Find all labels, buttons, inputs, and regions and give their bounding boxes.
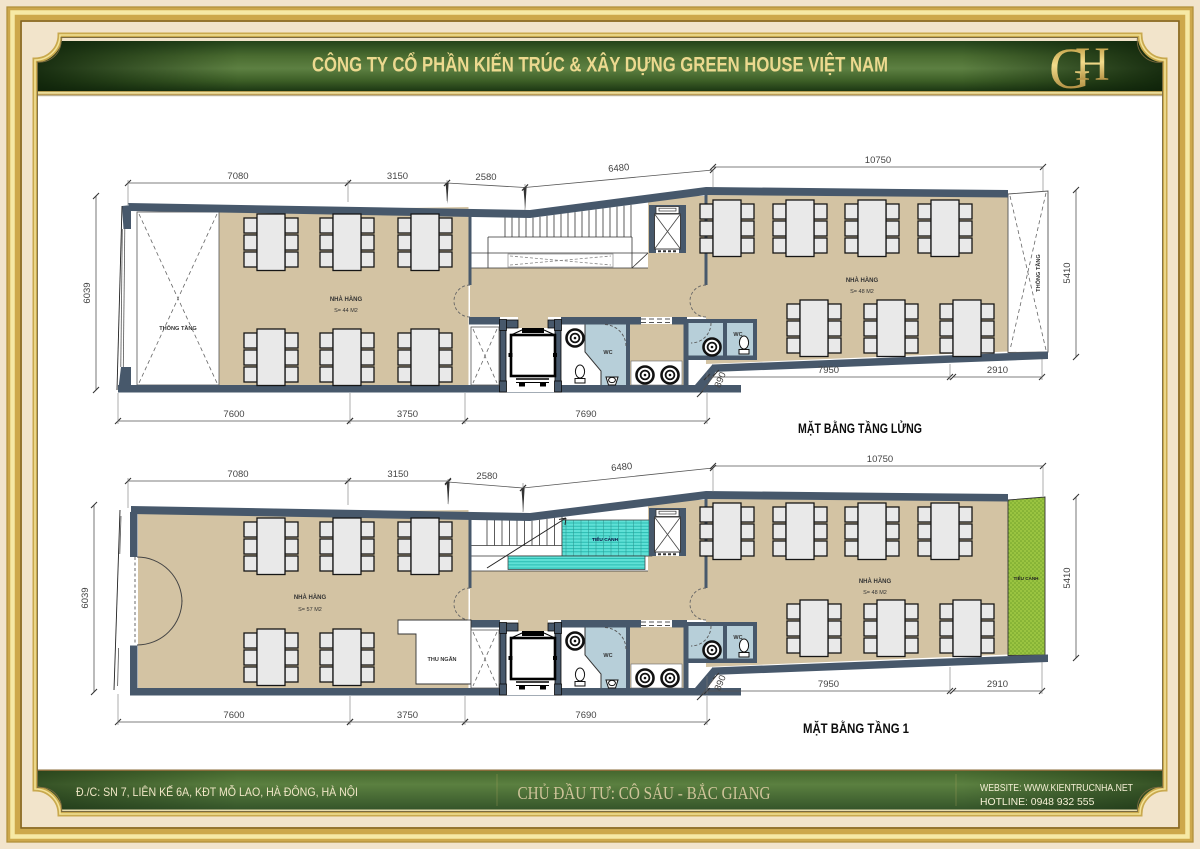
- svg-text:S= 44 M2: S= 44 M2: [334, 308, 358, 314]
- svg-text:3150: 3150: [387, 469, 408, 480]
- svg-text:NHÀ HÀNG: NHÀ HÀNG: [859, 578, 892, 585]
- svg-text:CHỦ ĐẦU TƯ: CÔ SÁU - BẮC GIANG: CHỦ ĐẦU TƯ: CÔ SÁU - BẮC GIANG: [518, 782, 771, 803]
- svg-text:6039: 6039: [80, 587, 91, 608]
- svg-text:2580: 2580: [475, 172, 496, 183]
- svg-text:H: H: [1075, 38, 1110, 91]
- svg-text:NHÀ HÀNG: NHÀ HÀNG: [294, 594, 327, 601]
- svg-text:7690: 7690: [575, 409, 596, 420]
- svg-text:7080: 7080: [227, 469, 248, 480]
- svg-text:MẶT BẰNG TẦNG LỬNG: MẶT BẰNG TẦNG LỬNG: [798, 421, 922, 436]
- svg-text:WC: WC: [733, 635, 742, 641]
- svg-text:6480: 6480: [611, 461, 633, 474]
- svg-text:WC: WC: [603, 653, 612, 659]
- svg-text:5410: 5410: [1062, 567, 1073, 588]
- svg-text:Đ./C: SN 7, LIÊN KẾ 6A, KĐT MỖ: Đ./C: SN 7, LIÊN KẾ 6A, KĐT MỖ LAO, HÀ Đ…: [76, 785, 358, 799]
- svg-text:6480: 6480: [608, 162, 630, 175]
- svg-text:TIỂU CẢNH: TIỂU CẢNH: [592, 536, 619, 543]
- svg-text:7600: 7600: [223, 710, 244, 721]
- svg-text:3750: 3750: [397, 710, 418, 721]
- svg-text:7950: 7950: [818, 679, 839, 690]
- svg-text:TIỂU CẢNH: TIỂU CẢNH: [1013, 575, 1039, 581]
- svg-text:MẶT BẰNG TẦNG 1: MẶT BẰNG TẦNG 1: [803, 721, 909, 736]
- svg-text:7600: 7600: [223, 409, 244, 420]
- svg-text:2580: 2580: [476, 471, 497, 482]
- svg-text:THÔNG TẦNG: THÔNG TẦNG: [1034, 254, 1042, 292]
- svg-text:WEBSITE: WWW.KIENTRUCNHA.NET: WEBSITE: WWW.KIENTRUCNHA.NET: [980, 783, 1134, 794]
- svg-text:CÔNG TY CỔ PHẦN KIẾN TRÚC & XÂ: CÔNG TY CỔ PHẦN KIẾN TRÚC & XÂY DỰNG GRE…: [312, 53, 888, 77]
- svg-text:6039: 6039: [82, 282, 93, 303]
- svg-text:7690: 7690: [575, 710, 596, 721]
- svg-text:7950: 7950: [818, 365, 839, 376]
- svg-text:S= 48 M2: S= 48 M2: [850, 289, 874, 295]
- svg-text:2910: 2910: [987, 365, 1008, 376]
- svg-text:THU NGÂN: THU NGÂN: [427, 656, 456, 663]
- svg-text:WC: WC: [603, 350, 612, 356]
- svg-text:NHÀ HÀNG: NHÀ HÀNG: [846, 277, 879, 284]
- svg-text:7080: 7080: [227, 171, 248, 182]
- svg-text:3150: 3150: [387, 171, 408, 182]
- svg-text:NHÀ HÀNG: NHÀ HÀNG: [330, 296, 363, 303]
- svg-text:S= 48 M2: S= 48 M2: [863, 590, 887, 596]
- svg-text:2910: 2910: [987, 679, 1008, 690]
- svg-text:10750: 10750: [867, 454, 893, 465]
- svg-text:3750: 3750: [397, 409, 418, 420]
- svg-text:5410: 5410: [1062, 262, 1073, 283]
- svg-text:THÔNG TẦNG: THÔNG TẦNG: [159, 324, 197, 332]
- svg-text:10750: 10750: [865, 155, 891, 166]
- svg-text:S= 57 M2: S= 57 M2: [298, 607, 322, 613]
- svg-text:WC: WC: [733, 332, 742, 338]
- svg-text:HOTLINE: 0948 932 555: HOTLINE: 0948 932 555: [980, 797, 1095, 808]
